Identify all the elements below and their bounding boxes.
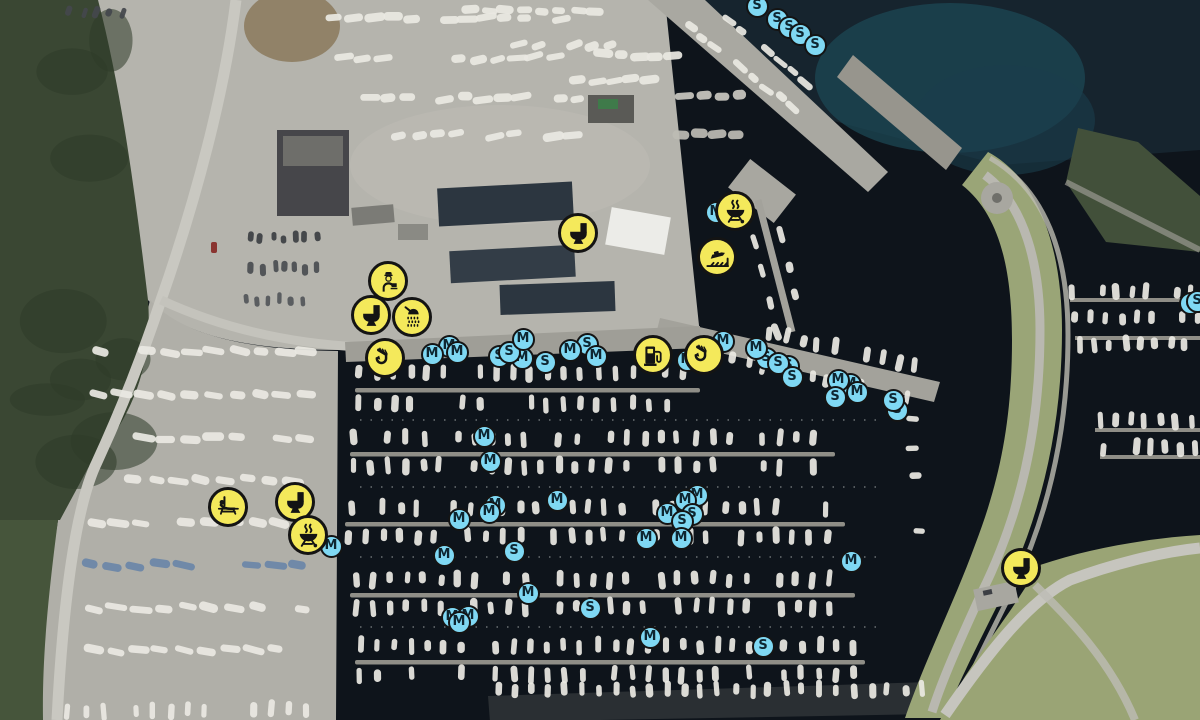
slipway-icon [704,244,731,271]
facility-marker-toilet[interactable] [558,213,598,253]
berth-marker-s[interactable]: S [804,34,827,57]
berth-marker-s[interactable]: S [579,597,602,620]
berth-marker-s[interactable]: S [781,366,804,389]
berth-marker-m[interactable]: M [639,626,662,649]
berth-marker-m[interactable]: M [517,582,540,605]
facility-marker-slipway[interactable] [697,237,737,277]
grill-icon [722,198,749,225]
berth-marker-m[interactable]: M [421,343,444,366]
berth-marker-m[interactable]: M [846,381,869,404]
berth-marker-s[interactable]: S [746,0,769,18]
berth-marker-m[interactable]: M [479,450,502,473]
toilet-icon [282,489,309,516]
berth-marker-s[interactable]: S [503,540,526,563]
berth-marker-m[interactable]: M [585,345,608,368]
berth-marker-s[interactable]: S [882,389,905,412]
berth-marker-s[interactable]: S [534,351,557,374]
berth-marker-m[interactable]: M [745,337,768,360]
berth-marker-m[interactable]: M [473,425,496,448]
facility-marker-bbq[interactable] [288,515,328,555]
crane-icon [691,342,718,369]
lounge-icon [215,494,242,521]
satellite-map[interactable]: SSSSSMMMMMMMSSMSSMMSSMSSMMMSSSSSMMMMMMMS… [0,0,1200,720]
berth-marker-m[interactable]: M [670,527,693,550]
facility-marker-toilet[interactable] [1001,548,1041,588]
harbour-office-icon [375,268,402,295]
berth-marker-m[interactable]: M [512,328,535,351]
crane-icon [372,345,399,372]
fuel-icon [640,342,667,369]
facility-marker-shower[interactable] [392,297,432,337]
berth-marker-m[interactable]: M [433,544,456,567]
facility-marker-crane[interactable] [365,338,405,378]
berth-marker-s[interactable]: S [752,635,775,658]
facility-marker-bbq[interactable] [715,191,755,231]
berth-marker-m[interactable]: M [546,489,569,512]
berth-marker-m[interactable]: M [635,527,658,550]
berth-marker-s[interactable]: S [824,386,847,409]
facility-marker-toilet[interactable] [351,295,391,335]
facility-marker-recreation[interactable] [208,487,248,527]
shower-icon [399,304,426,331]
toilet-icon [1008,555,1035,582]
berth-marker-m[interactable]: M [448,611,471,634]
toilet-icon [358,302,385,329]
berth-marker-m[interactable]: M [840,550,863,573]
berth-marker-m[interactable]: M [559,339,582,362]
berth-marker-m[interactable]: M [448,508,471,531]
grill-icon [295,522,322,549]
facility-marker-fuel[interactable] [633,335,673,375]
facility-marker-crane[interactable] [684,335,724,375]
toilet-icon [565,220,592,247]
berth-marker-m[interactable]: M [446,341,469,364]
berth-marker-m[interactable]: M [478,501,501,524]
